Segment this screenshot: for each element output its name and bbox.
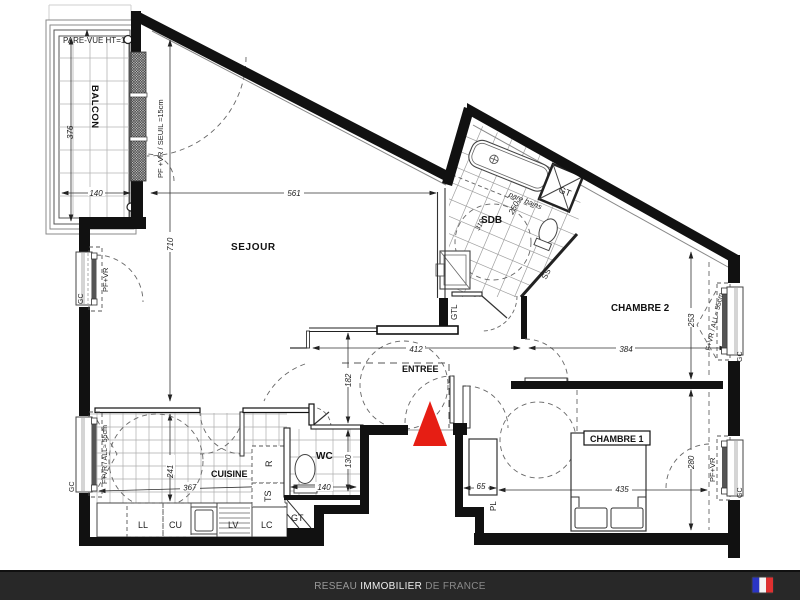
svg-text:412: 412 bbox=[409, 345, 423, 354]
svg-text:435: 435 bbox=[615, 485, 629, 494]
svg-text:GC: GC bbox=[69, 482, 76, 493]
svg-text:65: 65 bbox=[477, 482, 486, 491]
svg-text:LL: LL bbox=[138, 520, 148, 530]
svg-text:CHAMBRE 2: CHAMBRE 2 bbox=[611, 303, 670, 314]
svg-text:561: 561 bbox=[287, 189, 300, 198]
svg-text:BALCON: BALCON bbox=[89, 85, 100, 129]
svg-text:GC: GC bbox=[78, 294, 85, 305]
svg-text:TS: TS bbox=[263, 490, 273, 502]
svg-text:253: 253 bbox=[687, 313, 696, 328]
svg-text:GT: GT bbox=[291, 513, 304, 523]
svg-text:LC: LC bbox=[261, 520, 273, 530]
svg-text:130: 130 bbox=[344, 454, 353, 468]
svg-text:PF+VR: PF+VR bbox=[708, 457, 717, 482]
svg-text:WC: WC bbox=[316, 451, 333, 462]
svg-text:R: R bbox=[264, 460, 274, 467]
svg-text:PF +VR / SEUIL ≈15cm: PF +VR / SEUIL ≈15cm bbox=[156, 99, 165, 178]
svg-text:710: 710 bbox=[166, 237, 175, 251]
svg-text:182: 182 bbox=[344, 373, 353, 387]
svg-text:GC: GC bbox=[737, 488, 744, 499]
svg-text:384: 384 bbox=[619, 345, 633, 354]
svg-text:PL: PL bbox=[489, 501, 498, 511]
svg-text:CU: CU bbox=[169, 520, 182, 530]
svg-text:241: 241 bbox=[166, 465, 175, 479]
svg-text:CHAMBRE 1: CHAMBRE 1 bbox=[590, 434, 644, 444]
svg-text:RESEAU IMMOBILIER DE FRANCE: RESEAU IMMOBILIER DE FRANCE bbox=[314, 581, 486, 592]
svg-text:LV: LV bbox=[228, 520, 238, 530]
svg-text:CUISINE: CUISINE bbox=[211, 469, 248, 479]
svg-text:GC: GC bbox=[737, 352, 744, 363]
svg-text:376: 376 bbox=[66, 125, 75, 139]
svg-text:140: 140 bbox=[89, 189, 103, 198]
svg-text:ENTREE: ENTREE bbox=[402, 364, 439, 374]
svg-text:F+VR / ALL≈ 55cm: F+VR / ALL≈ 55cm bbox=[102, 425, 109, 484]
svg-text:GTL: GTL bbox=[450, 304, 459, 320]
svg-text:PF+VR: PF+VR bbox=[101, 267, 110, 292]
svg-text:140: 140 bbox=[317, 483, 331, 492]
svg-text:280: 280 bbox=[687, 455, 696, 470]
svg-text:SEJOUR: SEJOUR bbox=[231, 242, 276, 253]
